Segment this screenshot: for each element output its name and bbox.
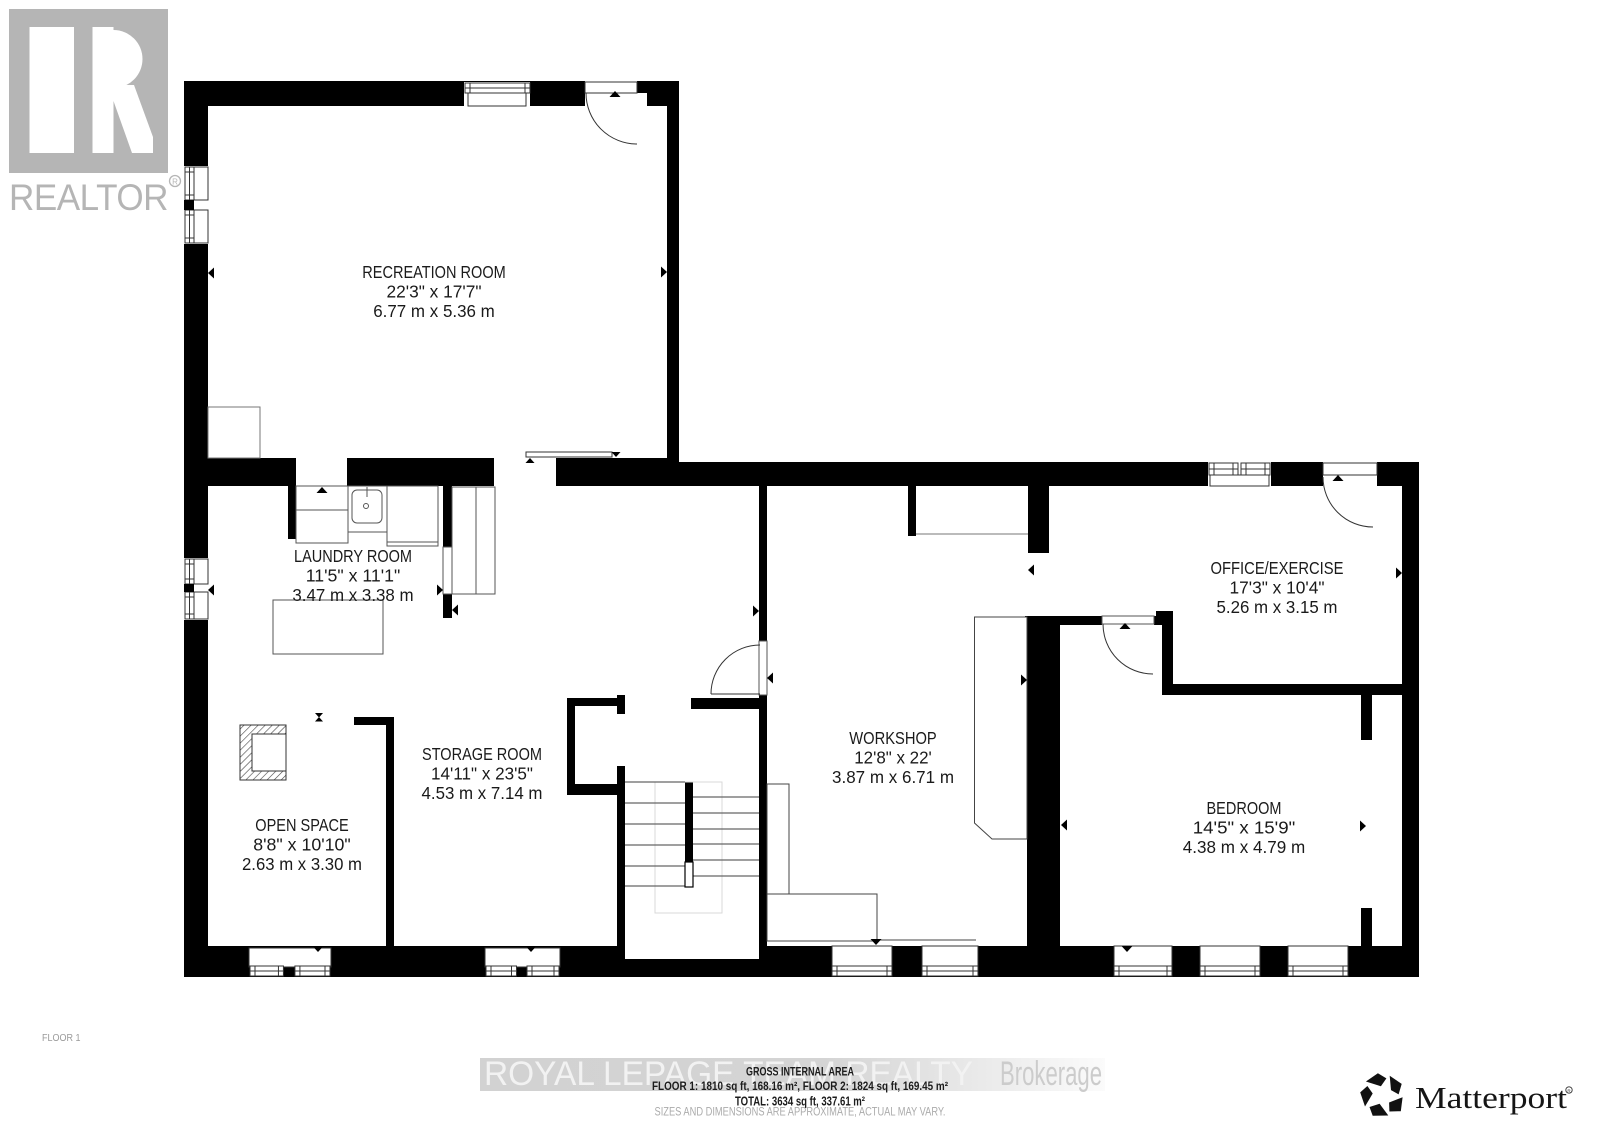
svg-text:FLOOR 1: 1810 sq ft, 168.16 m²: FLOOR 1: 1810 sq ft, 168.16 m², FLOOR 2:… (652, 1079, 948, 1093)
svg-text:8'8" x 10'10": 8'8" x 10'10" (253, 835, 351, 855)
svg-text:LAUNDRY ROOM: LAUNDRY ROOM (294, 546, 412, 566)
svg-text:STORAGE ROOM: STORAGE ROOM (422, 744, 542, 764)
svg-text:OPEN SPACE: OPEN SPACE (255, 815, 349, 835)
svg-text:OFFICE/EXERCISE: OFFICE/EXERCISE (1211, 558, 1344, 578)
svg-text:22'3" x 17'7": 22'3" x 17'7" (387, 282, 482, 302)
svg-text:11'5" x 11'1": 11'5" x 11'1" (306, 566, 401, 586)
svg-text:6.77 m x 5.36 m: 6.77 m x 5.36 m (373, 301, 495, 321)
svg-text:RECREATION ROOM: RECREATION ROOM (362, 262, 506, 282)
svg-text:GROSS INTERNAL AREA: GROSS INTERNAL AREA (746, 1067, 854, 1079)
svg-text:WORKSHOP: WORKSHOP (849, 728, 937, 748)
svg-text:2.63 m x 3.30 m: 2.63 m x 3.30 m (242, 854, 362, 874)
svg-text:R: R (172, 178, 178, 187)
svg-text:4.38 m x 4.79 m: 4.38 m x 4.79 m (1183, 837, 1306, 857)
svg-text:3.87 m x 6.71 m: 3.87 m x 6.71 m (832, 767, 954, 787)
svg-text:3.47 m x 3.38 m: 3.47 m x 3.38 m (292, 585, 413, 605)
svg-text:REALTOR: REALTOR (9, 177, 168, 218)
svg-text:14'11" x 23'5": 14'11" x 23'5" (431, 764, 533, 784)
svg-text:BEDROOM: BEDROOM (1207, 798, 1282, 818)
svg-text:12'8" x 22': 12'8" x 22' (854, 748, 932, 768)
svg-text:4.53 m x 7.14 m: 4.53 m x 7.14 m (422, 783, 543, 803)
svg-text:17'3" x 10'4": 17'3" x 10'4" (1230, 578, 1325, 598)
svg-text:FLOOR 1: FLOOR 1 (42, 1032, 81, 1044)
svg-text:14'5" x 15'9": 14'5" x 15'9" (1193, 818, 1296, 838)
svg-text:Matterport: Matterport (1415, 1080, 1567, 1115)
svg-text:SIZES AND DIMENSIONS ARE APPRO: SIZES AND DIMENSIONS ARE APPROXIMATE, AC… (655, 1107, 946, 1119)
svg-text:5.26 m x 3.15 m: 5.26 m x 3.15 m (1217, 597, 1338, 617)
svg-text:Brokerage: Brokerage (1000, 1055, 1102, 1093)
